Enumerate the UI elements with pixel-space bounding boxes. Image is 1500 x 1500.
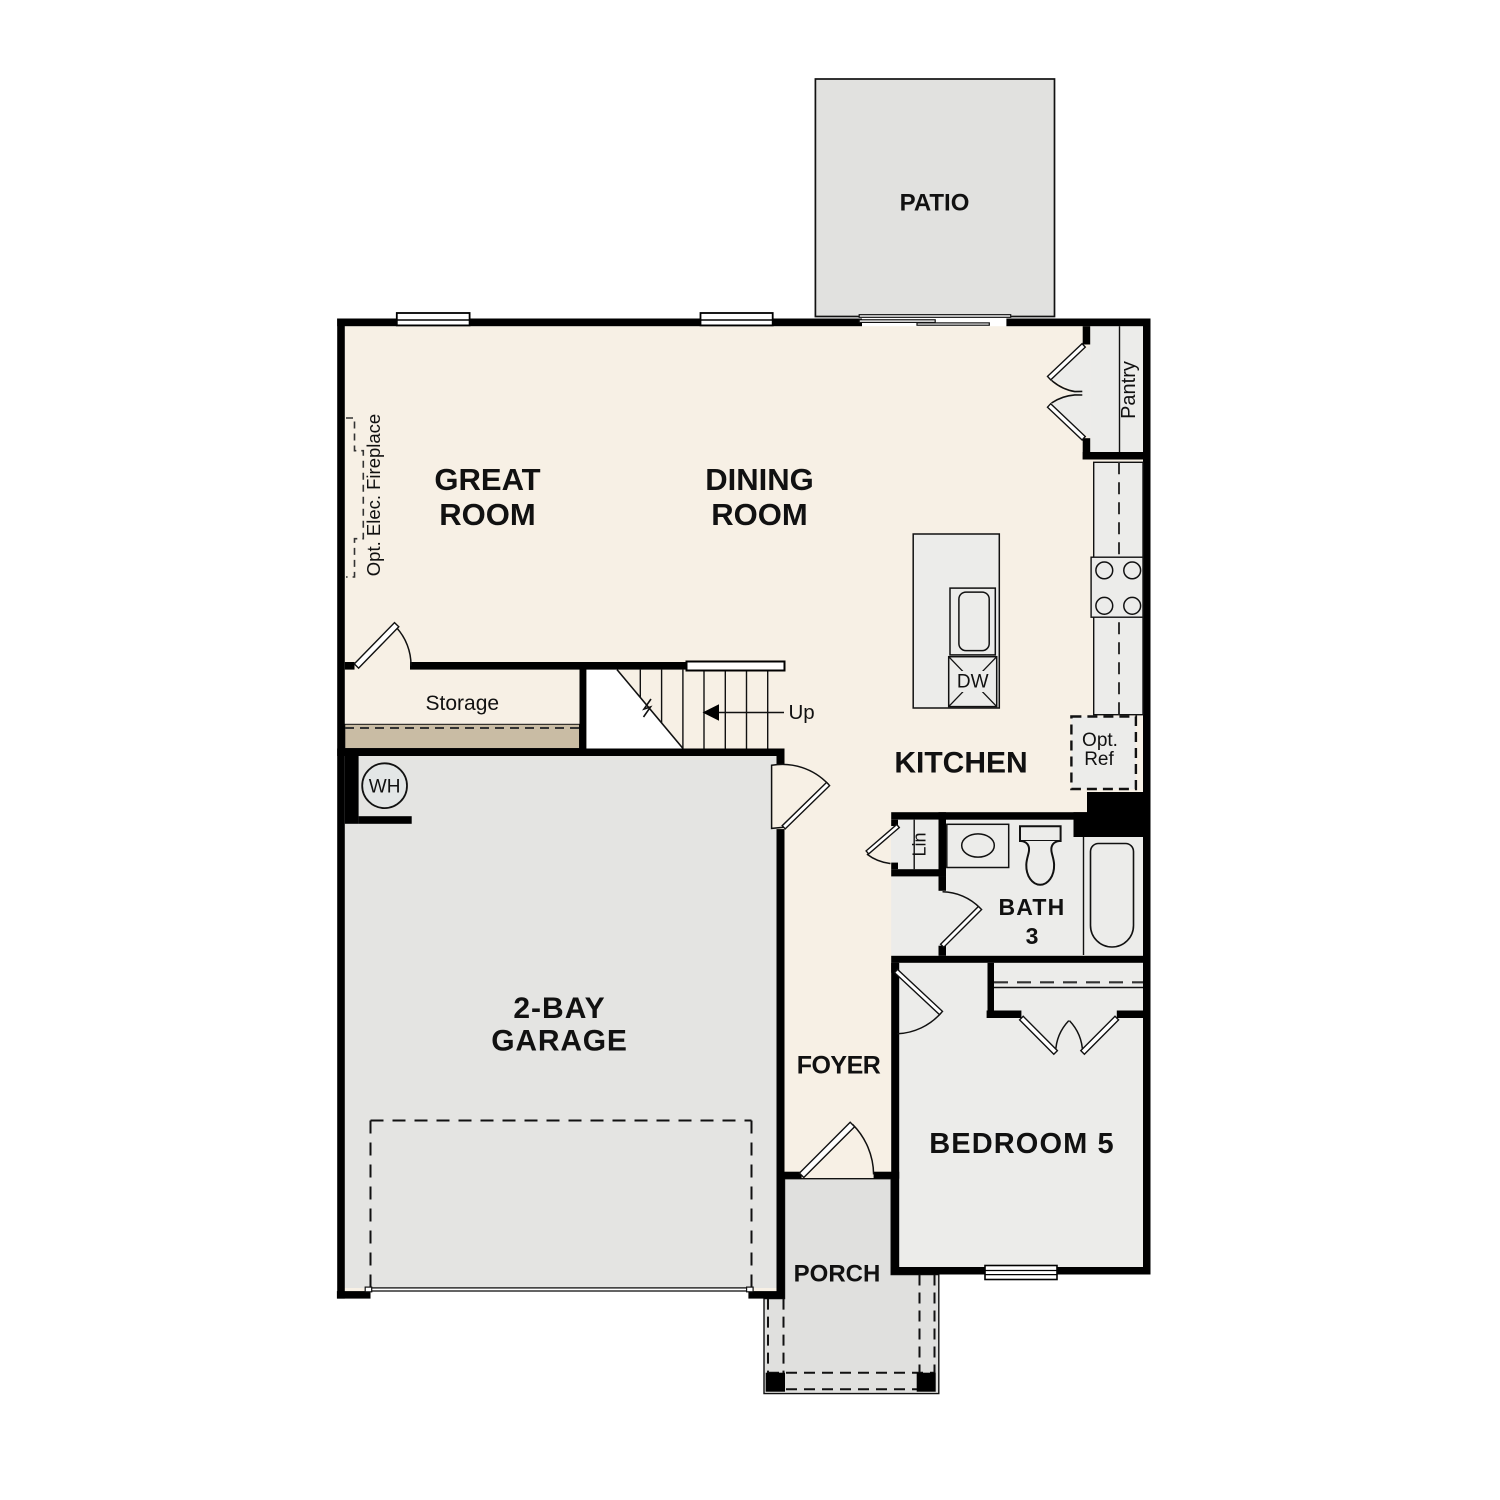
svg-text:PORCH: PORCH xyxy=(794,1261,881,1288)
svg-text:WH: WH xyxy=(369,777,401,798)
svg-text:3: 3 xyxy=(1026,923,1039,949)
svg-text:KITCHEN: KITCHEN xyxy=(894,747,1027,780)
svg-text:GARAGE: GARAGE xyxy=(491,1025,627,1058)
svg-text:FOYER: FOYER xyxy=(797,1052,881,1080)
svg-text:ROOM: ROOM xyxy=(711,497,807,532)
svg-text:BEDROOM 5: BEDROOM 5 xyxy=(929,1128,1115,1160)
svg-text:DW: DW xyxy=(957,672,989,693)
svg-text:2-BAY: 2-BAY xyxy=(513,992,605,1025)
svg-text:Ref: Ref xyxy=(1084,749,1114,770)
svg-text:Lin: Lin xyxy=(910,832,930,856)
svg-text:Pantry: Pantry xyxy=(1118,361,1140,419)
svg-text:GREAT: GREAT xyxy=(434,462,540,497)
svg-text:DINING: DINING xyxy=(705,462,814,497)
svg-text:PATIO: PATIO xyxy=(900,190,970,217)
svg-text:Opt.: Opt. xyxy=(1082,730,1118,751)
svg-text:Opt. Elec. Fireplace: Opt. Elec. Fireplace xyxy=(363,414,384,576)
svg-text:BATH: BATH xyxy=(999,894,1066,920)
svg-text:Storage: Storage xyxy=(426,692,500,715)
svg-text:ROOM: ROOM xyxy=(439,497,535,532)
svg-text:Up: Up xyxy=(789,701,815,724)
